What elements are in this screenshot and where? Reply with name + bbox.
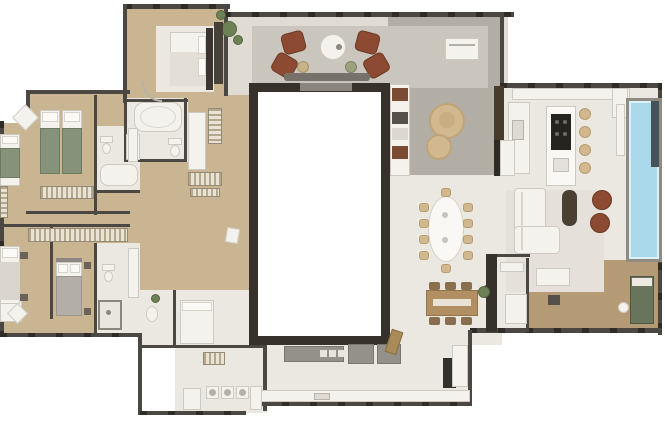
dining-chair (419, 251, 429, 260)
breakfast-chair (445, 317, 456, 325)
counter-vertical (452, 345, 468, 387)
pillow (2, 136, 18, 144)
bathtub-basin (140, 106, 176, 128)
pillow (58, 264, 68, 273)
laundry-machine (250, 386, 262, 410)
vanity (128, 248, 139, 298)
dining-chair (463, 203, 473, 212)
twin-bed-blanket (40, 128, 60, 174)
plant (216, 10, 226, 20)
daybed-pillow (632, 278, 652, 286)
dining-table (428, 196, 464, 262)
fire-pit-center (336, 44, 342, 50)
wall (140, 345, 267, 348)
service-cabinet (348, 344, 374, 364)
shower (98, 300, 122, 330)
wardrobe-row (28, 228, 128, 242)
sofa-cushion (392, 88, 408, 101)
floor-plan (0, 0, 665, 427)
burner (555, 132, 559, 136)
wall (224, 12, 514, 17)
closet-wardrobe (190, 188, 220, 197)
sun-lounger (426, 134, 452, 160)
island-sink (553, 158, 569, 172)
nightstand (20, 294, 28, 301)
headboard (206, 28, 213, 90)
pillow (198, 36, 206, 54)
wall (500, 17, 504, 89)
tv-console (500, 140, 515, 176)
nightstand (84, 308, 91, 315)
suite-wardrobe (214, 22, 223, 84)
service-bed-pillow (182, 302, 212, 311)
washer (183, 388, 201, 410)
wall (123, 4, 127, 103)
pillow (2, 248, 18, 258)
bathtub (100, 164, 138, 186)
breakfast-chair (461, 282, 472, 290)
pillow (42, 112, 58, 122)
garden-bench (445, 38, 479, 60)
dining-chair (441, 188, 451, 197)
toilet (102, 143, 111, 154)
wall (184, 98, 187, 162)
closet-wardrobe (188, 172, 222, 186)
pool-ledge (616, 104, 625, 156)
wall (470, 328, 662, 333)
wall (0, 224, 130, 227)
sofa-side-table (392, 112, 408, 124)
shower-drain (106, 310, 111, 315)
toilet-tank (100, 136, 113, 143)
kitchen-sink (512, 120, 524, 140)
breakfast-chair (429, 282, 440, 290)
wardrobe (40, 186, 94, 199)
bar-stool (579, 126, 591, 138)
deck-lounger (536, 268, 570, 286)
deck-shelf (500, 262, 524, 272)
vanity (128, 128, 138, 162)
plant (478, 286, 490, 298)
corridor-chair (225, 227, 240, 244)
centerpiece (442, 237, 448, 243)
table-runner (433, 299, 471, 306)
dining-chair (463, 235, 473, 244)
bar-stool (579, 144, 591, 156)
central-void (249, 83, 390, 345)
dining-chair (419, 235, 429, 244)
closet-island (188, 112, 206, 170)
closet-wardrobe (208, 108, 222, 144)
plant (233, 35, 243, 45)
dining-chair (463, 219, 473, 228)
wall (140, 411, 246, 415)
wall (0, 333, 142, 337)
nightstand (20, 252, 28, 259)
washer-drum (209, 389, 216, 396)
washer-drum (239, 389, 246, 396)
wall (26, 90, 130, 94)
lounger-cushion (439, 112, 455, 128)
wall (96, 190, 140, 193)
deck-table (548, 295, 560, 305)
wardrobe (0, 186, 8, 218)
service-sink (314, 393, 330, 400)
cabinet-door (329, 350, 336, 357)
toilet-tank (168, 138, 182, 145)
pillow (198, 58, 206, 76)
plant (151, 294, 160, 303)
wall (26, 211, 130, 214)
dining-chair (419, 203, 429, 212)
breakfast-chair (461, 317, 472, 325)
sofa-seat (392, 128, 408, 140)
side-table (297, 61, 309, 73)
pillow (70, 264, 80, 273)
centerpiece (442, 212, 448, 218)
void-bridge-opening (300, 83, 352, 91)
terrace-bench-sofa (284, 73, 370, 81)
wall (173, 290, 176, 347)
plant (221, 21, 237, 37)
deck-stool (618, 302, 629, 313)
toilet (146, 306, 158, 322)
burner (563, 132, 567, 136)
pouf (592, 190, 612, 210)
small-room-bed (505, 294, 527, 324)
cabinet-door (338, 350, 345, 357)
fire-pit-table (320, 34, 346, 60)
burner (555, 120, 559, 124)
bar-stool (579, 162, 591, 174)
twin-bed-blanket (62, 128, 82, 174)
pillow (64, 112, 80, 122)
pool-shadow (651, 101, 659, 167)
closet (203, 352, 225, 365)
toilet (170, 145, 180, 157)
service-counter (258, 390, 470, 402)
sofa-seam (521, 192, 523, 250)
bed-blanket (0, 262, 20, 300)
nightstand (84, 262, 91, 269)
dining-chair (463, 251, 473, 260)
burner (563, 120, 567, 124)
bench-line (449, 44, 475, 46)
toilet (104, 271, 113, 282)
cabinet-door (320, 350, 327, 357)
breakfast-chair (445, 282, 456, 290)
bed-blanket (0, 148, 20, 178)
sofa-cushion (392, 146, 408, 159)
washer-drum (224, 389, 231, 396)
dining-chair (441, 264, 451, 273)
wall (94, 243, 97, 335)
dining-chair (419, 219, 429, 228)
wall (125, 4, 230, 9)
coffee-table (562, 190, 577, 226)
breakfast-chair (429, 317, 440, 325)
bar-stool (579, 108, 591, 120)
gray-bed-blanket (56, 276, 82, 316)
pouf (590, 213, 610, 233)
wall (94, 95, 97, 215)
cooktop (551, 114, 571, 150)
wall (497, 254, 530, 257)
toilet-tank (102, 264, 115, 271)
side-table (345, 61, 357, 73)
